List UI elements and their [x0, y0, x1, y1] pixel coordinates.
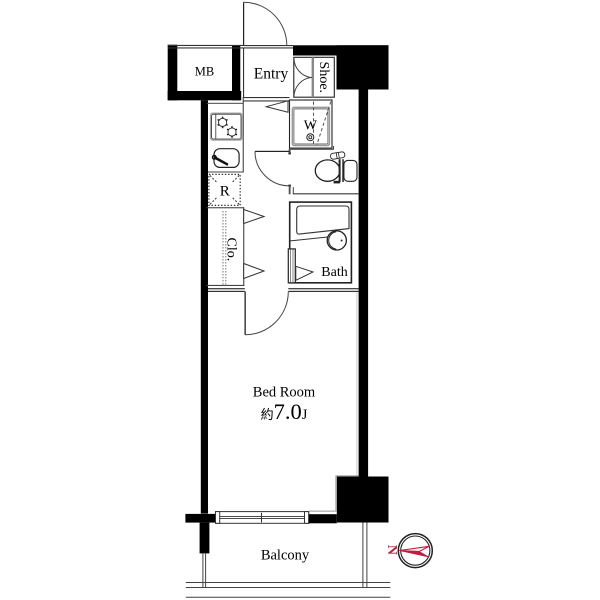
svg-text:Clo.: Clo.	[224, 238, 239, 262]
svg-text:Bath: Bath	[321, 265, 347, 280]
svg-text:Balcony: Balcony	[261, 548, 310, 564]
svg-text:MB: MB	[195, 65, 214, 79]
svg-text:R: R	[220, 184, 230, 200]
svg-text:Entry: Entry	[254, 66, 289, 83]
svg-text:W: W	[304, 119, 318, 134]
svg-text:N: N	[384, 545, 399, 555]
svg-text:Shoe.: Shoe.	[316, 62, 331, 94]
